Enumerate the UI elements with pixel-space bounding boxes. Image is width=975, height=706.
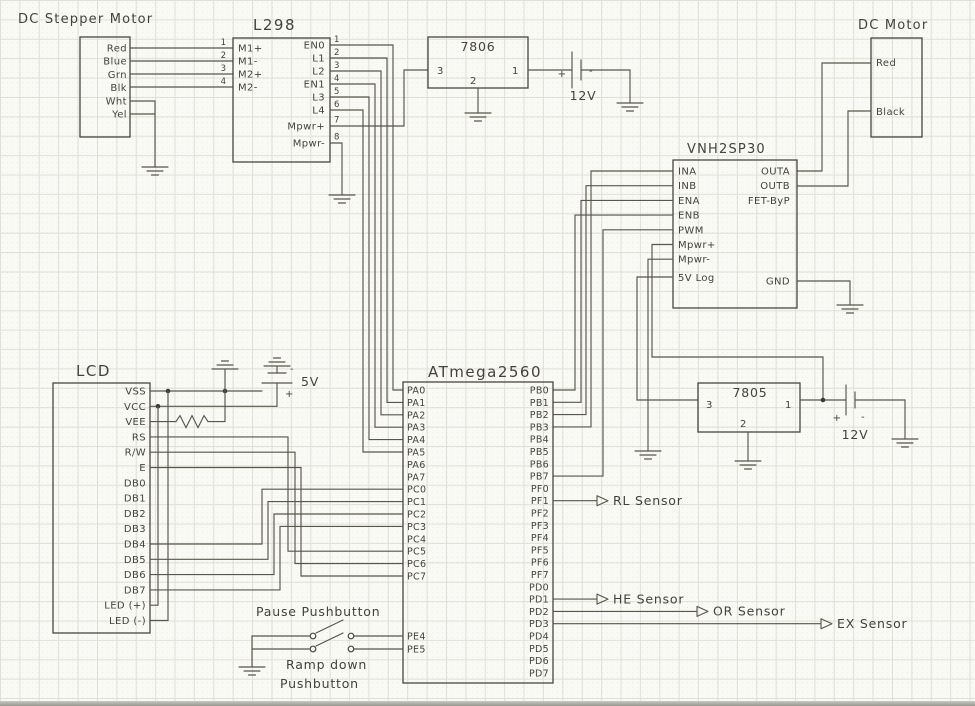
ground-symbol <box>837 298 863 313</box>
atmega-pin-pa4: PA4 <box>407 435 426 446</box>
vnh-pin-mpwr-: Mpwr- <box>678 255 710 266</box>
dc-motor-title: DC Motor <box>858 18 928 33</box>
ground-symbol <box>892 432 918 447</box>
l298-pin-l3: L3 <box>312 93 325 104</box>
wire-led-minus <box>150 391 168 621</box>
sensor-or-label: OR Sensor <box>713 604 786 619</box>
sensor-ex-label: EX Sensor <box>837 616 908 631</box>
atmega-pin-pb5: PB5 <box>530 447 549 458</box>
l298-pin-mpwr-minus: Mpwr- <box>293 139 325 150</box>
wire-l4-pa5 <box>330 110 403 452</box>
wire-vnh-gnd <box>797 281 850 298</box>
l298-num-1: 1 <box>334 35 339 45</box>
l298-num-6: 6 <box>334 100 339 110</box>
wire-l3-pa4 <box>330 97 403 440</box>
reg7805-pin-2: 2 <box>740 419 746 430</box>
reg7806-pin-1: 1 <box>512 66 518 77</box>
vnh-pin-enb: ENB <box>678 211 700 222</box>
vnh2sp30-title: VNH2SP30 <box>687 142 766 157</box>
graph-paper-sheet: DC Stepper Motor RedBlueGrnBlkWhtYel 123… <box>0 0 975 706</box>
battery-label: 5V <box>301 374 319 389</box>
l298-num-4: 4 <box>334 74 339 84</box>
vnh-pin-outb: OUTB <box>760 181 790 192</box>
stepper-pin-yel: Yel <box>111 110 127 121</box>
vnh-pin-mpwr+: Mpwr+ <box>678 240 716 251</box>
wire-l2-pa2 <box>330 71 403 415</box>
atmega-pin-pb4: PB4 <box>530 435 549 446</box>
wire-db7-pc3 <box>150 526 403 590</box>
stepper-wire-num-1: 1 <box>221 38 226 48</box>
ground-symbol <box>465 106 491 121</box>
l298-num-8: 8 <box>334 133 339 143</box>
ramp-down-label-line2: Pushbutton <box>280 676 359 691</box>
atmega-right-pin-labels: PB0PB1PB2PB3PB4PB5PB6PB7PF0PF1PF2PF3PF4P… <box>529 386 549 680</box>
atmega-pin-pe4: PE4 <box>407 632 426 643</box>
sensor-arrow-icon <box>597 594 608 604</box>
wire-ina-pb3 <box>553 171 673 427</box>
lcd-pin-db0: DB0 <box>124 478 146 489</box>
atmega-pin-pf6: PF6 <box>531 558 549 569</box>
l298-title: L298 <box>253 16 296 34</box>
junction-dot <box>821 398 826 403</box>
stepper-wire-num-4: 4 <box>221 77 226 87</box>
l298-num-3: 3 <box>334 61 339 71</box>
wire-mpwr-minus-gnd <box>330 143 342 188</box>
atmega-pin-pc7: PC7 <box>407 572 426 583</box>
dc-motor-pin-red: Red <box>876 58 896 69</box>
atmega-pin-pa0: PA0 <box>407 386 426 397</box>
switch-contact <box>310 646 316 652</box>
atmega-pin-pf2: PF2 <box>531 509 549 520</box>
lcd-pin-e: E <box>139 463 146 474</box>
stepper-pin-blue: Blue <box>103 57 127 68</box>
ground-symbol <box>142 160 168 175</box>
atmega-pin-pd3: PD3 <box>529 619 549 630</box>
lcd-pin-db5: DB5 <box>124 555 146 566</box>
switch-contact <box>348 646 354 652</box>
vnh-pin-5v-log: 5V Log <box>678 273 715 284</box>
battery-5v: - + 5V <box>262 358 319 406</box>
l298-right-pin-labels: EN0L1L2EN1L3L4 <box>304 41 325 117</box>
l298-pin-en1: EN1 <box>304 80 325 91</box>
sensor-arrow-icon <box>597 496 608 506</box>
lcd-pin-db3: DB3 <box>124 524 146 535</box>
lcd-pin-labels: VSSVCCVEERSR/WEDB0DB1DB2DB3DB4DB5DB6DB7L… <box>104 387 146 628</box>
atmega-pin-pd4: PD4 <box>529 632 549 643</box>
atmega-pin-pb7: PB7 <box>530 472 549 483</box>
wire-pwm-pb7 <box>553 230 673 476</box>
lcd-pin-db2: DB2 <box>124 509 146 520</box>
atmega-pin-pf1: PF1 <box>531 496 549 507</box>
atmega-pin-pc4: PC4 <box>407 534 426 545</box>
lcd-pin-db7: DB7 <box>124 585 146 596</box>
switch-contact <box>348 633 354 639</box>
l298-pin-l1: L1 <box>312 54 325 65</box>
battery-12v-right: + - 12V <box>833 385 869 442</box>
atmega-pin-pa7: PA7 <box>407 472 426 483</box>
resistor-symbol <box>176 416 208 428</box>
vnh-pin-gnd: GND <box>766 277 790 288</box>
reg7806-title: 7806 <box>460 39 495 54</box>
wire-db4-pc0 <box>150 489 403 544</box>
stepper-wire-num-3: 3 <box>221 64 226 74</box>
lcd-pin-led-: LED (-) <box>109 616 146 627</box>
pause-pushbutton-label: Pause Pushbutton <box>256 604 380 619</box>
wire-7806-to-mpwr-plus <box>330 70 428 126</box>
vnh-pin-inb: INB <box>678 181 697 192</box>
atmega-pin-pb1: PB1 <box>530 398 549 409</box>
atmega-pin-pd0: PD0 <box>529 582 549 593</box>
ground-symbol <box>617 96 643 111</box>
atmega-pin-pd2: PD2 <box>529 607 549 618</box>
ramp-switch-lever <box>316 633 343 646</box>
ground-symbol <box>329 188 355 203</box>
atmega-pin-pa2: PA2 <box>407 410 426 421</box>
stepper-pin-grn: Grn <box>108 70 127 81</box>
wire-outa-to-red <box>797 63 871 171</box>
lcd-pin-vss: VSS <box>125 387 146 398</box>
stepper-pin-labels: RedBlueGrnBlkWhtYel <box>103 44 127 121</box>
wire-rs-pc5 <box>150 437 403 551</box>
atmega-pin-pc6: PC6 <box>407 559 426 570</box>
atmega-title: ATmega2560 <box>428 363 542 381</box>
vnh-pin-outa: OUTA <box>761 167 790 178</box>
stepper-pin-wht: Wht <box>106 96 127 107</box>
stepper-title: DC Stepper Motor <box>18 12 153 27</box>
atmega-pin-pc2: PC2 <box>407 510 426 521</box>
atmega-pin-pc3: PC3 <box>407 522 426 533</box>
sensor-arrow-icon <box>821 619 832 629</box>
stepper-wire-numbers: 1234 <box>221 38 226 87</box>
atmega-pin-pa6: PA6 <box>407 460 426 471</box>
l298-right-numbers: 123456 <box>334 35 339 110</box>
wire-en1-pa3 <box>330 84 403 427</box>
wire-enb-pb0 <box>553 215 673 390</box>
battery-label: 12V <box>842 427 869 442</box>
atmega-pin-pb0: PB0 <box>530 386 549 397</box>
battery-minus-sign: - <box>861 412 865 423</box>
ground-symbol <box>212 361 238 376</box>
atmega-pin-pd7: PD7 <box>529 668 549 679</box>
atmega-pin-pf0: PF0 <box>531 484 549 495</box>
ground-symbol <box>264 358 290 373</box>
atmega-pe-pin-labels: PE4PE5 <box>407 632 426 656</box>
scan-edge <box>0 701 975 706</box>
ground-symbol <box>735 454 761 469</box>
battery-minus-sign: - <box>290 364 294 375</box>
atmega-pin-pc0: PC0 <box>407 485 426 496</box>
battery-plus-sign: + <box>285 389 293 400</box>
atmega-pin-pa3: PA3 <box>407 423 426 434</box>
reg7805-pin-3: 3 <box>706 400 712 411</box>
lcd-pin-rs: RS <box>132 432 146 443</box>
vnh-left-pin-labels: INAINBENAENBPWMMpwr+Mpwr- <box>678 167 716 266</box>
battery-plus-sign: + <box>558 69 566 80</box>
atmega-pin-pa5: PA5 <box>407 448 426 459</box>
vnh-pin-ena: ENA <box>678 196 700 207</box>
battery-12v-top: + - 12V <box>558 52 597 103</box>
sensor-he-label: HE Sensor <box>613 592 684 607</box>
atmega-pin-pd5: PD5 <box>529 644 549 655</box>
wire-outb-to-black <box>797 111 871 186</box>
switch-contact <box>310 633 316 639</box>
l298-pin-m2+: M2+ <box>238 70 263 81</box>
reg7806-pin-2: 2 <box>470 76 476 87</box>
wire-5vlog-to-7805 <box>637 277 698 400</box>
lcd-title: LCD <box>76 362 111 380</box>
atmega-pin-pc1: PC1 <box>407 497 426 508</box>
lcd-pin-vcc: VCC <box>124 402 146 413</box>
stepper-wire-num-2: 2 <box>221 51 226 61</box>
lcd-pin-r-w: R/W <box>125 448 146 459</box>
atmega-pin-pe5: PE5 <box>407 645 426 656</box>
lcd-pin-db4: DB4 <box>124 540 146 551</box>
vnh-pin-fet-byp: FET-ByP <box>748 196 790 207</box>
atmega-pin-pf4: PF4 <box>531 533 549 544</box>
l298-num-7: 7 <box>334 116 339 126</box>
l298-pin-l2: L2 <box>312 67 325 78</box>
stepper-pin-red: Red <box>107 44 127 55</box>
l298-pin-mpwr-plus: Mpwr+ <box>287 122 325 133</box>
wire-rw-pc6 <box>150 452 403 563</box>
atmega-pin-pf5: PF5 <box>531 545 549 556</box>
lcd-pin-db6: DB6 <box>124 570 146 581</box>
l298-left-pin-labels: M1+M1-M2+M2- <box>238 44 263 94</box>
wire-inb-pb2 <box>553 186 673 415</box>
wire-led-plus <box>150 406 158 605</box>
atmega-pin-pb2: PB2 <box>530 410 549 421</box>
ramp-down-label-line1: Ramp down <box>286 657 367 672</box>
atmega-left-pin-labels: PA0PA1PA2PA3PA4PA5PA6PA7PC0PC1PC2PC3PC4P… <box>407 386 426 583</box>
l298-pin-m2-: M2- <box>238 83 258 94</box>
l298-pin-l4: L4 <box>312 106 325 117</box>
battery-plus-sign: + <box>833 413 841 424</box>
atmega-pin-pf7: PF7 <box>531 570 549 581</box>
l298-pin-en0: EN0 <box>304 41 325 52</box>
atmega-pin-pd1: PD1 <box>529 595 549 606</box>
lcd-pin-led-+-: LED (+) <box>104 601 146 612</box>
lcd-pin-vee: VEE <box>125 417 146 428</box>
ground-symbol <box>635 444 661 459</box>
atmega-pin-pb3: PB3 <box>530 422 549 433</box>
dc-motor-box <box>871 38 922 137</box>
vnh-pin-pwm: PWM <box>678 225 704 236</box>
stepper-pin-blk: Blk <box>110 83 127 94</box>
battery-minus-sign: - <box>589 66 593 77</box>
atmega-pin-pf3: PF3 <box>531 521 549 532</box>
sensor-arrow-icon <box>697 606 708 616</box>
atmega-pin-pb6: PB6 <box>530 459 549 470</box>
atmega-pin-pd6: PD6 <box>529 656 549 667</box>
reg7805-pin-1: 1 <box>785 400 791 411</box>
schematic-canvas: DC Stepper Motor RedBlueGrnBlkWhtYel 123… <box>0 0 975 706</box>
lcd-pin-db1: DB1 <box>124 494 146 505</box>
l298-num-2: 2 <box>334 48 339 58</box>
ground-symbol <box>239 660 265 675</box>
l298-pin-m1+: M1+ <box>238 44 263 55</box>
wire-ena-pb1 <box>553 200 673 402</box>
pause-switch-lever <box>316 620 343 633</box>
wire-stepper-wht-yel-gnd <box>130 101 155 160</box>
atmega-pin-pa1: PA1 <box>407 398 426 409</box>
reg7805-title: 7805 <box>732 385 767 400</box>
atmega-pin-pc5: PC5 <box>407 547 426 558</box>
reg7806-pin-3: 3 <box>437 66 443 77</box>
l298-num-5: 5 <box>334 87 339 97</box>
l298-pin-m1-: M1- <box>238 57 258 68</box>
battery-label: 12V <box>570 88 597 103</box>
vnh-pin-ina: INA <box>678 167 696 178</box>
dc-motor-pin-black: Black <box>876 107 905 118</box>
sensor-rl-label: RL Sensor <box>613 493 683 508</box>
